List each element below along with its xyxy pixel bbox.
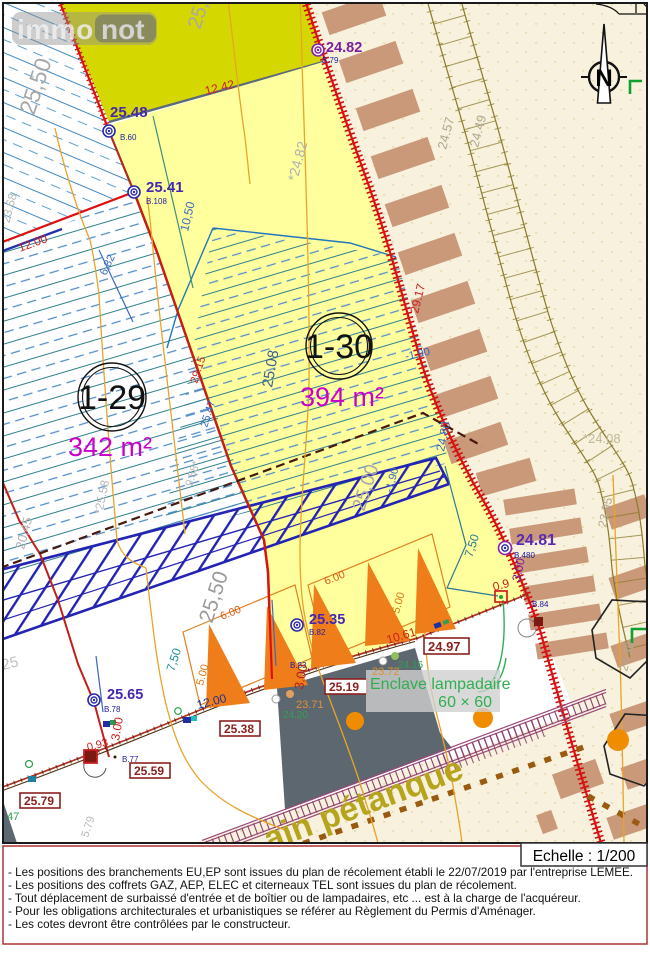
- svg-text:B.84: B.84: [532, 600, 549, 609]
- svg-text:Echelle : 1/200: Echelle : 1/200: [533, 848, 636, 865]
- svg-text:Enclave lampadaire: Enclave lampadaire: [370, 676, 511, 693]
- svg-text:B.79: B.79: [322, 56, 339, 65]
- svg-text:25.48: 25.48: [110, 104, 148, 121]
- svg-text:47: 47: [7, 811, 19, 823]
- svg-text:23.72: 23.72: [372, 666, 400, 678]
- svg-text:25.41: 25.41: [146, 179, 184, 196]
- svg-text:- Les positions des branchemen: - Les positions des branchements EU,EP s…: [8, 866, 633, 879]
- svg-text:B.60: B.60: [120, 133, 137, 142]
- svg-text:- Tout déplacement de surbaiss: - Tout déplacement de surbaissé d'entrée…: [8, 892, 581, 905]
- svg-text:*24.08: *24.08: [583, 431, 621, 446]
- svg-text:not: not: [101, 14, 145, 45]
- svg-text:25.79: 25.79: [24, 794, 54, 808]
- svg-text:24.81: 24.81: [516, 532, 556, 549]
- svg-text:25.65: 25.65: [107, 687, 143, 703]
- svg-text:24.16: 24.16: [398, 660, 423, 671]
- svg-text:B.82: B.82: [309, 628, 326, 637]
- svg-text:- Pour les obligations archite: - Pour les obligations architecturales e…: [8, 905, 536, 918]
- svg-text:60 × 60: 60 × 60: [438, 694, 492, 711]
- svg-text:- Les positions des coffrets G: - Les positions des coffrets GAZ, AEP, E…: [8, 879, 517, 892]
- svg-text:25.59: 25.59: [134, 764, 164, 778]
- svg-text:394 m²: 394 m²: [300, 382, 384, 412]
- svg-text:B.108: B.108: [146, 197, 167, 206]
- svg-text:immo: immo: [17, 14, 94, 45]
- svg-text:342 m²: 342 m²: [68, 432, 152, 462]
- svg-text:1-29: 1-29: [78, 379, 146, 417]
- svg-text:- Les cotes devront être contr: - Les cotes devront être contrôlées par …: [8, 918, 291, 931]
- svg-text:25.35: 25.35: [309, 612, 345, 628]
- svg-text:25.19: 25.19: [329, 680, 359, 694]
- svg-text:N: N: [595, 65, 612, 92]
- svg-text:1-30: 1-30: [305, 328, 373, 366]
- svg-text:25.38: 25.38: [224, 722, 254, 736]
- svg-text:B.78: B.78: [104, 705, 121, 714]
- svg-text:24.82: 24.82: [326, 40, 362, 56]
- svg-text:24.20: 24.20: [283, 710, 308, 721]
- svg-text:24.97: 24.97: [428, 639, 461, 654]
